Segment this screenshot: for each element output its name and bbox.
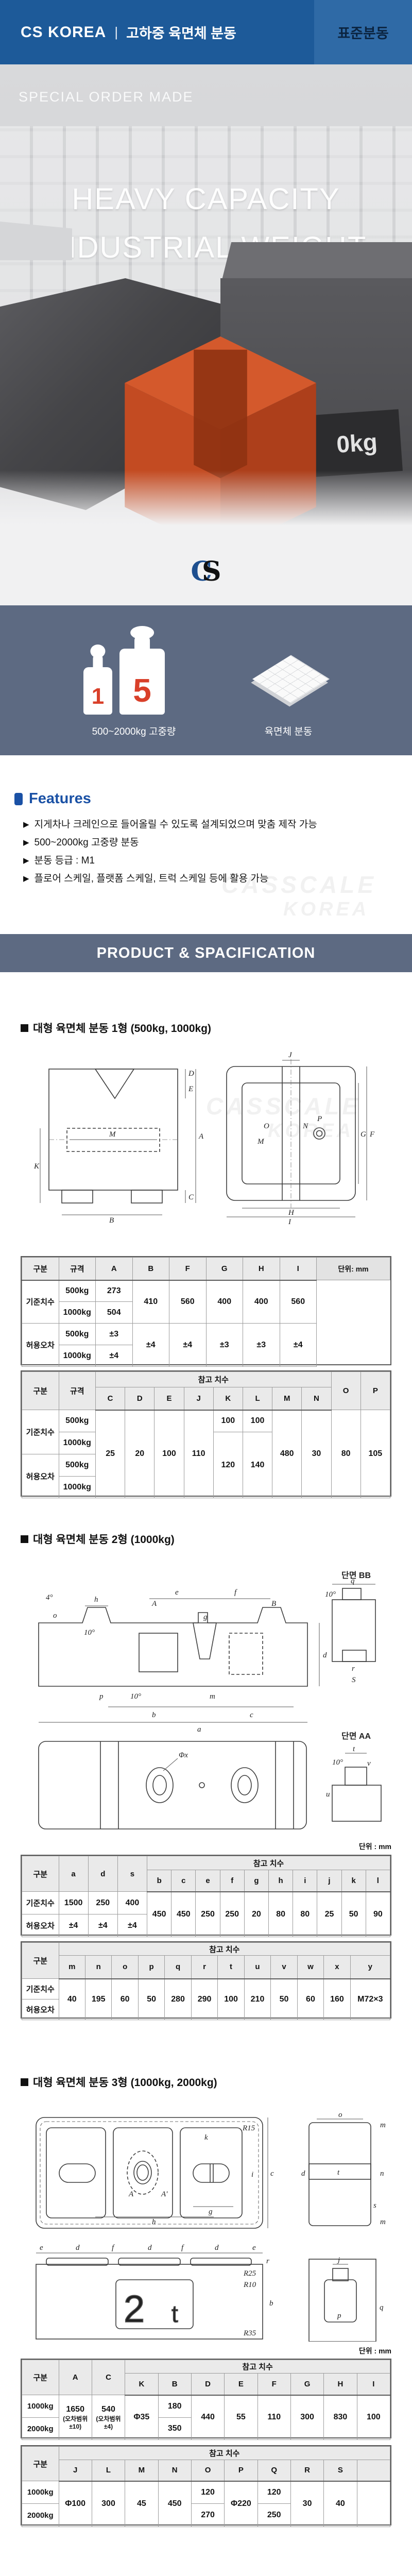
col-header: F [257,2374,290,2395]
dim-label-C: C [188,1193,194,1201]
dim-label-N: N [302,1122,308,1130]
value-cell: 100 [218,1979,244,2020]
value-cell: 410 [132,1280,169,1324]
standard-weight-badge[interactable]: 표준분동 [314,0,412,64]
col-header-group: 참고 치수 [59,2447,390,2460]
col-header: J [184,1387,213,1410]
value-cell: 100 [243,1410,272,1432]
hero-title-line1: HEAVY CAPACITY [0,182,412,216]
col-header [357,2460,390,2481]
value-cell: 160 [324,1979,350,2020]
type3-dimension-table: 구분 A C 참고 치수 K B D E F G H I 1 [21,2359,391,2438]
cs-logo-icon: C S [191,558,221,585]
header-left: CS KOREA | 고하중 육면체 분동 [21,0,236,64]
value-cell: ±3 [96,1324,133,1345]
col-header: c [171,1870,196,1892]
feature-text: 500~2000kg 고중량 분동 [35,837,139,849]
col-header: P [360,1372,390,1410]
value-cell: 40 [324,2481,357,2527]
dim-label-c: c [250,1711,253,1719]
col-header: y [350,1956,390,1979]
value-cell: 440 [191,2395,224,2440]
dim-label-g: g [209,2208,213,2216]
brand-text: CS KOREA [21,24,106,41]
dim-label-f: f [181,2244,184,2252]
col-header: E [154,1387,184,1410]
col-header: C [96,1387,125,1410]
value-cell: 560 [169,1280,207,1324]
hero-section: SPECIAL ORDER MADE HEAVY CAPACITY INDUST… [0,64,412,541]
dim-label-10deg: 10° [84,1629,95,1637]
feature-item: ▶ 플로어 스케일, 플랫폼 스케일, 트럭 스케일 등에 활용 가능 [23,873,394,885]
row-group: 허용오차 [22,1914,59,1937]
section-mark-A-prime: A' [161,2190,168,2198]
col-header: m [59,1956,85,1979]
col-header: j [317,1870,341,1892]
value-cell: 50 [341,1892,366,1937]
row-group: 허용오차 [22,1454,59,1498]
dim-label-d: d [76,2244,80,2252]
col-header: N [158,2460,191,2481]
features-title: Features [29,790,91,807]
feature-text: 분동 등급 : M1 [35,855,95,867]
col-header: a [59,1856,88,1892]
radius-label-R15: R15 [242,2124,255,2132]
logo-strip: C S [0,541,412,605]
page: CS KOREA | 고하중 육면체 분동 표준분동 SPECIAL ORDER… [0,0,412,2576]
value-cell: 400 [117,1892,147,1914]
dim-label-m: m [380,2121,386,2129]
dim-label-t: t [353,1745,355,1753]
value-cell: 450 [147,1892,171,1937]
specbar-title: PRODUCT & SPACIFICATION [97,945,316,962]
dim-label-p: p [99,1692,104,1701]
col-header: I [357,2374,390,2395]
col-header: B [132,1258,169,1280]
col-header-group: 참고 치수 [125,2360,390,2374]
type1-heading-text: 대형 육면체 분동 1형 (500kg, 1000kg) [33,1020,211,1036]
col-header: b [147,1870,171,1892]
value-cell: 110 [257,2395,290,2440]
dim-label-10deg: 10° [332,1758,343,1767]
dim-label-g: g [203,1613,208,1621]
col-header: P [225,2460,257,2481]
type3-reference-table: 구분 참고 치수 J L M N O P Q R S 10 [21,2445,391,2526]
value-cell: ±4 [117,1914,147,1937]
triangle-bullet-icon: ▶ [23,819,29,831]
bottle-number-5: 5 [133,671,151,709]
dim-label-P: P [317,1115,322,1123]
spec-cell: 1000kg [59,1345,96,1367]
value-cell: 830 [324,2395,357,2440]
value-cell: 250 [257,2504,290,2527]
col-header: J [59,2460,92,2481]
col-header: d [88,1856,117,1892]
dim-label-M: M [257,1138,265,1146]
radius-label-R10: R10 [243,2281,256,2289]
row-group: 허용오차 [22,1999,59,2020]
value-cell: 90 [366,1892,390,1937]
dim-label-a: a [197,1725,201,1734]
dim-label-m: m [380,2218,386,2226]
dim-label-i: i [251,2171,253,2179]
spec-cell: 500kg [59,1410,96,1432]
unit-label: 단위 : mm [21,2346,391,2356]
hexahedron-grid-icon [216,632,360,715]
cast-letter-t: t [171,2300,178,2327]
value-cell: 280 [165,1979,191,2020]
row-group: 2000kg [22,2504,59,2527]
row-group: 기준치수 [22,1410,59,1454]
value-cell: 350 [158,2418,191,2440]
dim-label-u: u [326,1790,330,1799]
cs-logo-letter-s: S [202,558,221,585]
dim-label-d: d [301,2170,305,2178]
value-cell: Φ220 [225,2481,257,2527]
value-cell: 100 [154,1410,184,1498]
col-header: S [324,2460,357,2481]
dim-label-10deg: 10° [130,1692,141,1701]
radius-label-R25: R25 [243,2269,256,2278]
col-header: H [324,2374,357,2395]
dim-label-b: b [152,1711,156,1719]
value-cell: 250 [220,1892,244,1937]
dim-label-h: h [152,2218,156,2226]
col-header: v [271,1956,297,1979]
section-mark-A: A [128,2190,134,2198]
spec-cell: 500kg [59,1280,96,1302]
value-cell: 400 [243,1280,280,1324]
dim-label-K: K [33,1162,40,1171]
type3-heading: 대형 육면체 분동 3형 (1000kg, 2000kg) [21,2074,217,2090]
unit-cell: 단위: mm [317,1258,390,1280]
value-cell: 120 [257,2481,290,2504]
value-cell: 50 [271,1979,297,2020]
col-header: k [341,1870,366,1892]
value-cell: 480 [272,1410,302,1498]
section-mark-B: B [271,1600,276,1608]
value-cell: 290 [191,1979,217,2020]
dim-label-p: p [337,2312,341,2320]
dim-label-b: b [269,2299,273,2308]
col-header-group: 참고 치수 [96,1372,332,1387]
col-header: E [225,2374,257,2395]
dim-label-d: d [148,2244,152,2252]
value-cell: 1650(오차범위 ±10) [59,2395,92,2440]
col-header: G [290,2374,323,2395]
type2-heading: 대형 육면체 분동 2형 (1000kg) [21,1531,175,1547]
spec-cell: 1000kg [59,1477,96,1498]
features-list: ▶ 지게차나 크레인으로 들어올릴 수 있도록 설계되었으며 맞춤 제작 가능 … [23,819,394,891]
triangle-bullet-icon: ▶ [23,855,29,867]
highlight-band: 1 5 500~2000kg 고중량 육면체 분동 [0,605,412,755]
weight-capacity-text: 0kg [336,428,379,458]
value-cell: 25 [96,1410,125,1498]
dim-label-e: e [175,1588,179,1597]
value-cell: 110 [184,1410,213,1498]
col-header: 구분 [22,2360,59,2395]
col-header: e [196,1870,220,1892]
dim-label-A: A [198,1132,204,1141]
dim-label-F: F [369,1130,375,1139]
value-cell: Φ100 [59,2481,92,2527]
value-cell: 250 [88,1892,117,1914]
weight-bottle-small-icon: 1 [83,667,112,715]
col-header: O [191,2460,224,2481]
dim-label-s: s [373,2201,376,2210]
col-header: 구분 [22,2447,59,2481]
feature-item: ▶ 지게차나 크레인으로 들어올릴 수 있도록 설계되었으며 맞춤 제작 가능 [23,819,394,831]
dim-label-S: S [352,1676,356,1684]
col-header: 구분 [22,1258,59,1280]
spec-cell: 1000kg [59,1302,96,1324]
value-cell: 80 [269,1892,293,1937]
dim-label-d: d [323,1651,327,1659]
col-header: o [112,1956,138,1979]
grid-tile-face [252,655,330,703]
value-cell: 273 [96,1280,133,1302]
section-mark-A: A [151,1600,157,1608]
value-cell: 400 [206,1280,243,1324]
dim-label-phix: Φx [179,1751,188,1759]
product-specification-bar: PRODUCT & SPACIFICATION [0,934,412,972]
value-cell: 100 [357,2395,390,2440]
col-header: K [125,2374,158,2395]
square-bullet-icon [21,2078,28,2086]
value-cell: 300 [92,2481,125,2527]
dim-label-G: G [360,1130,366,1139]
col-header-group: 참고 치수 [59,1943,390,1956]
col-header: L [243,1387,272,1410]
cast-number-2: 2 [124,2287,145,2330]
col-header: t [218,1956,244,1979]
col-header: l [366,1870,390,1892]
feature-text: 지게차나 크레인으로 들어올릴 수 있도록 설계되었으며 맞춤 제작 가능 [35,819,317,831]
value-cell: 40 [59,1979,85,2020]
value-cell: 80 [293,1892,317,1937]
value-cell: 450 [158,2481,191,2527]
dim-label-e: e [252,2244,256,2252]
col-header: C [92,2360,125,2395]
dim-label-c: c [270,2170,274,2178]
col-header: D [125,1387,154,1410]
col-header: 규격 [59,1372,96,1410]
triangle-bullet-icon: ▶ [23,873,29,885]
row-group: 기준치수 [22,1979,59,1999]
value-cell: 80 [331,1410,360,1498]
value-cell: 120 [213,1432,243,1498]
header-bar: CS KOREA | 고하중 육면체 분동 표준분동 [0,0,412,64]
type2-dimension-table: 구분 a d s 참고 치수 b c e f g h i j k l [21,1855,391,1936]
col-header: g [244,1870,268,1892]
type1-dimension-table: 구분 규격 A B F G H I 단위: mm 기준치수 500kg 273 … [21,1256,391,1365]
dim-label-e: e [40,2244,43,2252]
weight-bottles-icon: 1 5 [62,632,206,715]
col-header: Q [257,2460,290,2481]
dim-label-B: B [109,1216,114,1225]
col-header: M [272,1387,302,1410]
row-group: 허용오차 [22,1324,59,1367]
dim-label-t: t [337,2168,340,2177]
dim-label-o: o [338,2111,342,2119]
dim-label-10deg: 10° [325,1590,336,1599]
dim-label-M: M [109,1130,116,1139]
dim-label-j: j [337,2256,340,2264]
features-bullet-icon [14,793,23,805]
value-cell: ±4 [88,1914,117,1937]
type1-technical-drawing: A B C D E K M J F G H I N O P M [31,1051,381,1247]
value-cell: ±4 [96,1345,133,1367]
header-separator: | [114,24,118,40]
col-header: I [280,1258,317,1280]
value-cell: ±4 [169,1324,207,1367]
value-cell: 250 [196,1892,220,1937]
dim-label-4deg: 4° [46,1594,53,1602]
radius-label-R35: R35 [243,2329,256,2337]
badge-label: 표준분동 [337,22,388,42]
dim-label-r: r [352,1665,355,1673]
col-header: A [59,2360,92,2395]
dim-label-n: n [380,2170,384,2178]
value-cell: 50 [138,1979,164,2020]
col-header: K [213,1387,243,1410]
value-cell [357,2481,390,2527]
value-cell: Φ35 [125,2395,158,2440]
value-cell: 120 [191,2481,224,2504]
col-header-group: 참고 치수 [147,1856,390,1870]
value-cell: 140 [243,1432,272,1498]
type1-heading: 대형 육면체 분동 1형 (500kg, 1000kg) [21,1020,211,1036]
row-group: 1000kg [22,2481,59,2504]
col-header: p [138,1956,164,1979]
type2-reference-table: 구분 참고 치수 m n o p q r t u v w x y [21,1941,391,2019]
col-header: n [85,1956,111,1979]
dim-label-q: q [351,1577,355,1585]
square-bullet-icon [21,1024,28,1032]
grid-tile-icon [252,655,330,703]
value-cell: 25 [317,1892,341,1937]
hero-fade [0,470,412,541]
band-caption-shape: 육면체 분동 [216,724,360,738]
dim-label-f: f [234,1588,237,1597]
value-cell: 560 [280,1280,317,1324]
dim-label-o: o [53,1612,57,1620]
col-header: q [165,1956,191,1979]
value-cell: ±4 [280,1324,317,1367]
hero-kicker: SPECIAL ORDER MADE [19,89,194,105]
row-group: 기준치수 [22,1280,59,1324]
col-header: i [293,1870,317,1892]
col-header: 구분 [22,1372,59,1410]
spec-cell: 1000kg [59,1432,96,1454]
dim-label-m: m [210,1692,215,1701]
type3-heading-text: 대형 육면체 분동 3형 (1000kg, 2000kg) [33,2074,217,2090]
feature-item: ▶ 분동 등급 : M1 [23,855,394,867]
value-cell: 195 [85,1979,111,2020]
col-header: w [297,1956,323,1979]
dim-label-r: r [266,2257,269,2265]
dim-label-H: H [288,1209,295,1217]
value-cell: ±4 [59,1914,88,1937]
col-header: r [191,1956,217,1979]
col-header: G [206,1258,243,1280]
value-cell: 210 [244,1979,270,2020]
dim-label-k: k [204,2133,208,2142]
value-cell: 60 [297,1979,323,2020]
weight-bottle-big-icon: 5 [119,649,165,715]
col-header: N [302,1387,331,1410]
band-caption-capacity: 500~2000kg 고중량 [62,724,206,738]
bottle-number-1: 1 [92,684,104,709]
dim-label-h: h [94,1596,98,1604]
col-header: f [220,1870,244,1892]
row-group: 기준치수 [22,1892,59,1914]
col-header: R [290,2460,323,2481]
type2-heading-text: 대형 육면체 분동 2형 (1000kg) [33,1531,175,1547]
type3-technical-drawing: A A' R15 k g h i c o d t s n m m 2 t e d… [23,2110,389,2342]
value-cell: 450 [171,1892,196,1937]
col-header: O [331,1372,360,1410]
dim-label-J: J [288,1051,293,1059]
col-header: 구분 [22,1943,59,1979]
value-cell: 105 [360,1410,390,1498]
value-cell: 270 [191,2504,224,2527]
dim-label-D: D [188,1070,194,1078]
value-cell: ±4 [132,1324,169,1367]
col-header: u [244,1956,270,1979]
section-aa-title: 단면 AA [341,1732,371,1741]
value-cell: 30 [302,1410,331,1498]
value-cell: 45 [125,2481,158,2527]
page-title: 고하중 육면체 분동 [126,22,236,42]
dim-label-E: E [188,1085,193,1093]
dim-label-f: f [112,2244,115,2252]
col-header: 구분 [22,1856,59,1892]
section-bb-title: 단면 BB [341,1571,371,1580]
triangle-bullet-icon: ▶ [23,837,29,849]
spec-cell: 500kg [59,1324,96,1345]
col-header: B [158,2374,191,2395]
row-group: 2000kg [22,2418,59,2440]
value-cell: 504 [96,1302,133,1324]
row-group: 1000kg [22,2395,59,2418]
value-cell: 300 [290,2395,323,2440]
col-header: x [324,1956,350,1979]
feature-text: 플로어 스케일, 플랫폼 스케일, 트럭 스케일 등에 활용 가능 [35,873,269,885]
unit-label: 단위 : mm [21,1841,391,1852]
spec-cell: 500kg [59,1454,96,1477]
col-header: M [125,2460,158,2481]
value-cell: 30 [290,2481,323,2527]
value-cell: 180 [158,2395,191,2418]
features-heading: Features [14,790,91,807]
dim-label-v: v [367,1759,371,1768]
type1-reference-table: 구분 규격 참고 치수 O P C D E J K L M N [21,1370,391,1497]
value-cell: ±3 [243,1324,280,1367]
dim-label-q: q [380,2303,384,2312]
value-cell: ±3 [206,1324,243,1367]
value-cell: 20 [125,1410,154,1498]
value-cell: 1500 [59,1892,88,1914]
type2-technical-drawing: e f h g A B 4° o 10° d p 10° m b c a 단면 … [23,1564,389,1837]
col-header: L [92,2460,125,2481]
col-header: h [269,1870,293,1892]
col-header: s [117,1856,147,1892]
col-header: H [243,1258,280,1280]
col-header: 규격 [59,1258,96,1280]
value-cell: 55 [225,2395,257,2440]
dim-label-d: d [215,2244,219,2252]
